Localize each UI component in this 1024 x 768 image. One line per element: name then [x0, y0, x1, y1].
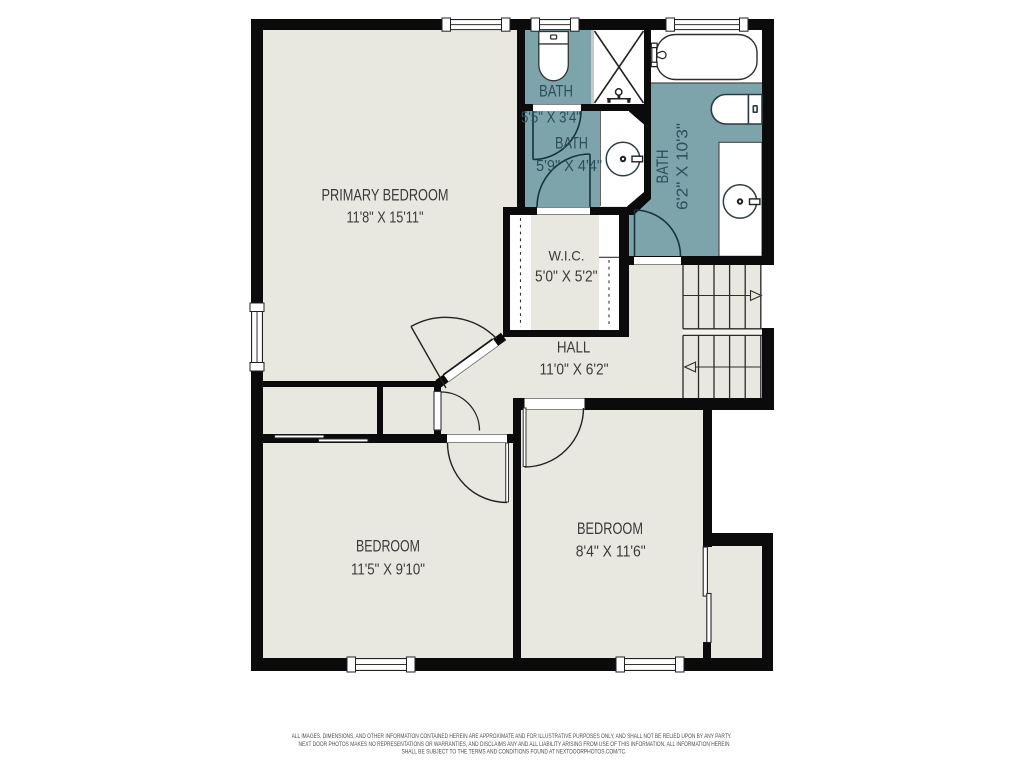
svg-text:11'0" X 6'2": 11'0" X 6'2" — [540, 362, 609, 379]
svg-text:BEDROOM: BEDROOM — [577, 520, 643, 538]
svg-text:NEXT DOOR PHOTOS MAKES NO REPR: NEXT DOOR PHOTOS MAKES NO REPRESENTATION… — [299, 741, 730, 748]
svg-text:BEDROOM: BEDROOM — [356, 537, 420, 555]
svg-text:5'0" X 5'2": 5'0" X 5'2" — [535, 269, 598, 286]
svg-text:BATH: BATH — [539, 83, 573, 101]
svg-text:ALL IMAGES, DIMENSIONS, AND OT: ALL IMAGES, DIMENSIONS, AND OTHER INFORM… — [292, 733, 732, 740]
svg-text:5'5" X 3'4": 5'5" X 3'4" — [521, 109, 581, 126]
svg-text:11'5" X 9'10": 11'5" X 9'10" — [351, 562, 425, 579]
svg-text:BATH: BATH — [555, 134, 588, 152]
svg-text:8'4" X 11'6": 8'4" X 11'6" — [576, 544, 646, 561]
svg-text:W.I.C.: W.I.C. — [549, 248, 585, 264]
svg-text:SHALL BE SUBJECT TO THE TERMS: SHALL BE SUBJECT TO THE TERMS AND CONDIT… — [402, 749, 627, 756]
svg-text:HALL: HALL — [557, 339, 591, 356]
svg-text:PRIMARY BEDROOM: PRIMARY BEDROOM — [322, 186, 449, 204]
svg-text:5'9" X 4'4": 5'9" X 4'4" — [536, 158, 602, 175]
svg-text:11'8" X 15'11": 11'8" X 15'11" — [347, 209, 424, 226]
